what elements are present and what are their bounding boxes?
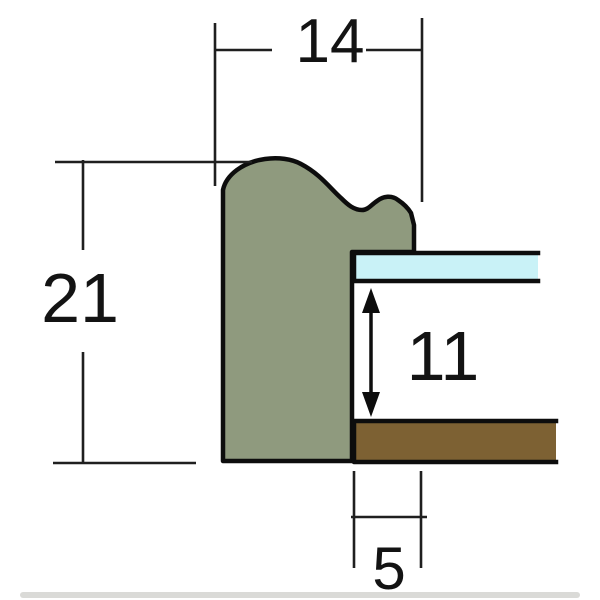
baseline-bar — [20, 592, 580, 598]
moulding-profile-shape — [223, 158, 414, 461]
glass-strip — [354, 253, 538, 281]
arrow-down-icon — [362, 392, 380, 417]
height-dimension: 21 — [41, 160, 252, 463]
width-value-label: 14 — [296, 7, 365, 76]
arrow-up-icon — [362, 288, 380, 313]
lip-width-value-label: 5 — [372, 535, 405, 600]
cross-section-diagram: 14 21 11 5 — [0, 0, 600, 600]
backing-board-strip — [354, 421, 556, 462]
rabbet-depth-dimension: 11 — [362, 288, 479, 417]
frame-moulding-cross-section: 14 21 11 5 — [0, 0, 600, 600]
lip-width-dimension: 5 — [351, 471, 427, 600]
height-value-label: 21 — [41, 259, 119, 337]
rabbet-depth-value-label: 11 — [407, 317, 480, 395]
